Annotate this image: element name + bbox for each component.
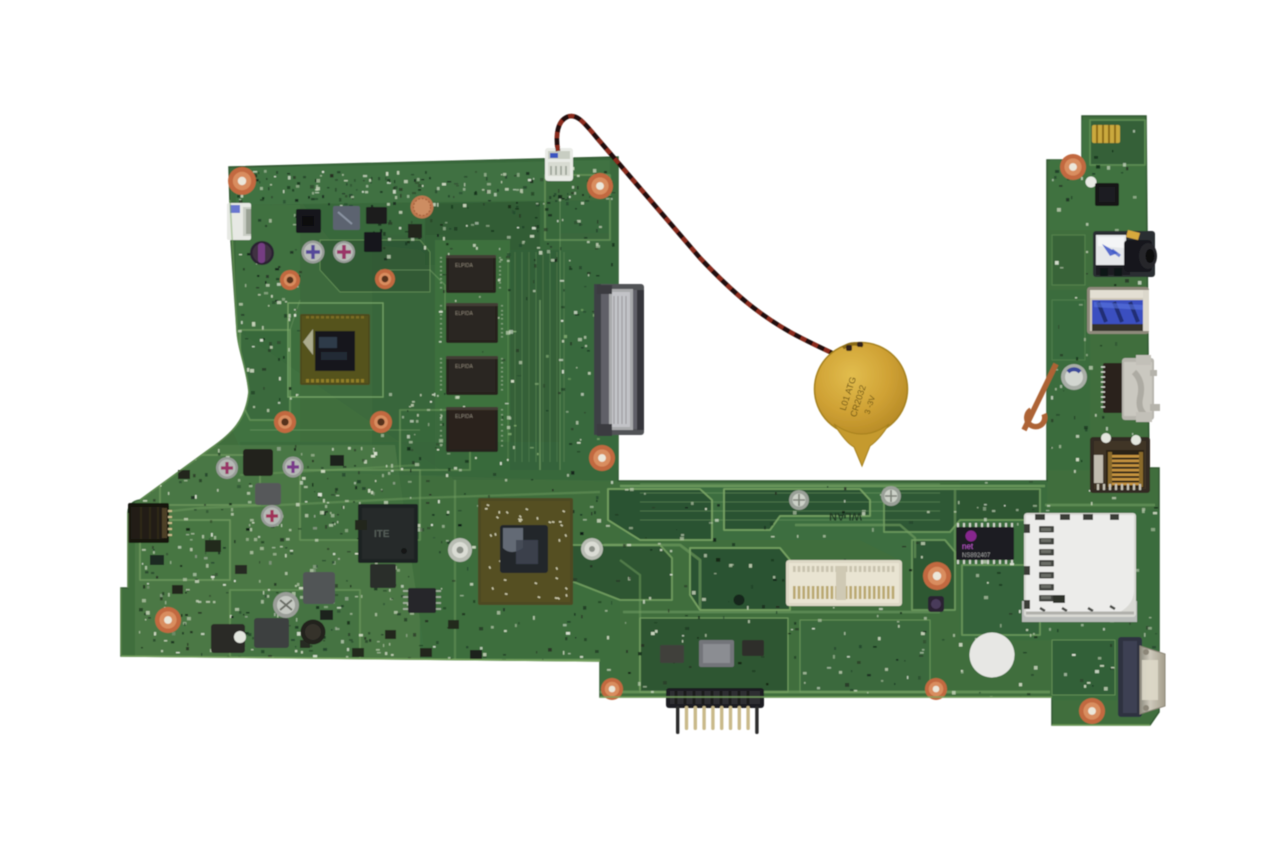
svg-text:ELPIDA: ELPIDA bbox=[455, 311, 473, 317]
svg-text:net: net bbox=[962, 542, 974, 551]
svg-text:ELPIDA: ELPIDA bbox=[455, 414, 473, 420]
svg-text:ELPIDA: ELPIDA bbox=[455, 364, 473, 370]
svg-text:ELPIDA: ELPIDA bbox=[455, 263, 473, 269]
svg-text:ITE: ITE bbox=[374, 529, 390, 540]
svg-text:WLAN: WLAN bbox=[829, 510, 862, 522]
svg-text:NS892407: NS892407 bbox=[962, 553, 991, 559]
